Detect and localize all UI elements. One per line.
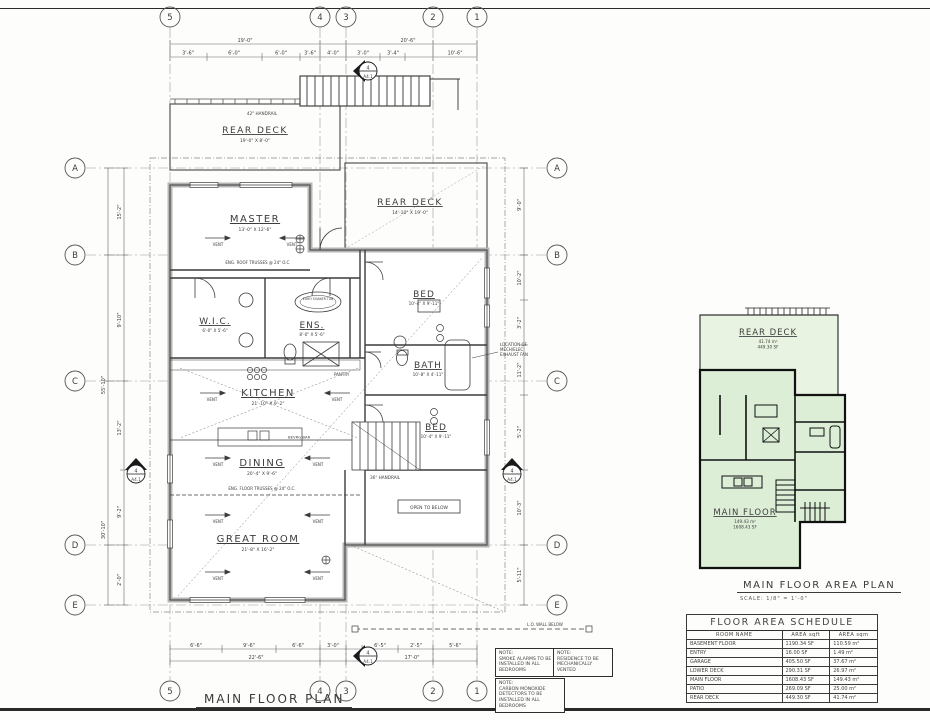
grid-col-3: 3 [343, 13, 348, 23]
section-sheet: A4.1 [363, 659, 373, 664]
dim-top-seg-4: 3'-6" [304, 51, 316, 57]
grid-row-a2: A [554, 164, 560, 174]
note-body: CARBON MONOXIDE DETECTORS TO BE INSTALLE… [499, 687, 561, 710]
cell-room: REAR DECK [687, 694, 783, 703]
area-floor-label: MAIN FLOOR [713, 508, 776, 518]
cell-sqm: 149.43 m² [830, 676, 878, 685]
dim-bot-seg-4: 3'-0" [327, 643, 339, 649]
cell-sqft: 1608.43 SF [782, 676, 830, 685]
area-deck-railing [745, 308, 830, 315]
grid-row-c2: C [554, 377, 560, 387]
master-dims: 13'-0" X 12'-6" [239, 227, 272, 233]
dim-top-span-2: 20'-6" [400, 38, 415, 44]
grid-col-2: 2 [430, 13, 435, 23]
soaker-tub-label: EURO SOAKER TUB [303, 297, 334, 301]
main-floor-area-plan-drawing: REAR DECK 41.74 m² 449.30 SF MAIN FLOOR … [680, 300, 880, 590]
schedule-header-sqft: AREA sqft [782, 631, 830, 640]
grid-row-c: C [72, 377, 78, 387]
cell-sqm: 37.67 m² [830, 658, 878, 667]
roof-truss-note: ENG. ROOF TRUSSES @ 24" O.C. [225, 260, 290, 265]
section-num: 4 [510, 469, 513, 475]
deck-stairs: 42" HANDRAIL [247, 76, 460, 116]
dim-top-seg-1: 3'-6" [182, 51, 194, 57]
dim-bot-span-2: 17'-0" [404, 655, 419, 661]
ens-label: ENS. [300, 321, 325, 331]
vent-label: VENT [287, 242, 298, 247]
grid-col-5: 5 [167, 13, 172, 23]
section-marker-left: 4 A4.1 [125, 458, 147, 483]
dim-bot-seg-2: 9'-6" [243, 643, 255, 649]
section-marker-right: 4 A4.1 [501, 458, 523, 483]
schedule-row: GARAGE 405.50 SF 37.67 m² [687, 658, 878, 667]
vent-label: VENT [213, 462, 224, 467]
section-num: 4 [366, 66, 369, 72]
dim-left-seg-4: 9'-2" [117, 506, 123, 518]
grid-col-2b: 2 [430, 687, 435, 697]
cell-room: ENTRY [687, 649, 783, 658]
dim-top-seg-6: 3'-0" [357, 51, 369, 57]
dim-left-seg-1: 15'-2" [117, 204, 123, 219]
dim-right-seg-3: 3'-2" [517, 317, 523, 329]
master-label: MASTER [230, 214, 280, 225]
vent-label: VENT [313, 462, 324, 467]
dim-top-span-1: 19'-0" [237, 38, 252, 44]
section-sheet: A4.1 [131, 477, 141, 482]
section-sheet: A4.1 [363, 74, 373, 79]
area-deck-sf: 449.30 SF [757, 345, 779, 350]
area-floor-shape [700, 370, 845, 568]
dining-label: DINING [239, 458, 284, 469]
bath-dims: 10'-8" X 4'-11" [413, 372, 444, 377]
schedule-header-sqm: AREA sqm [830, 631, 878, 640]
kitchen-dims: 21'-10" X 9'-2" [252, 401, 285, 407]
note-co-detectors: NOTE: CARBON MONOXIDE DETECTORS TO BE IN… [495, 678, 565, 713]
cell-sqft: 405.50 SF [782, 658, 830, 667]
rear-deck-right: REAR DECK 14'-10" X 19'-0" [345, 163, 487, 250]
dim-top-seg-2: 6'-0" [228, 51, 240, 57]
note-mech-vent: NOTE: RESIDENCE TO BE MECHANICALLY VENTE… [553, 648, 613, 677]
note-body: SMOKE ALARMS TO BE INSTALLED IN ALL BEDR… [499, 657, 555, 674]
schedule-row: ENTRY 16.00 SF 1.49 m² [687, 649, 878, 658]
cell-sqft: 290.31 SF [782, 667, 830, 676]
vent-label: VENT [213, 519, 224, 524]
cell-sqft: 1190.34 SF [782, 640, 830, 649]
vent-label: VENT [213, 242, 224, 247]
dim-left-seg-3: 13'-2" [117, 420, 123, 435]
dim-top-seg-3: 6'-0" [275, 51, 287, 57]
rear-deck-left: REAR DECK 19'-0" X 8'-0" [170, 99, 340, 170]
grid-bubbles-top: 5 4 3 2 1 [160, 7, 487, 27]
area-deck-label: REAR DECK [739, 328, 797, 338]
dim-bot-seg-3: 6'-6" [292, 643, 304, 649]
grid-col-1: 1 [474, 13, 479, 23]
dim-top-seg-8: 10'-6" [447, 51, 462, 57]
bed1-dims: 10'-4" X 9'-11" [409, 301, 440, 306]
dim-left-span-2: 30'-10" [101, 521, 107, 539]
cell-sqft: 16.00 SF [782, 649, 830, 658]
dim-right-seg-4: 11'-2" [517, 362, 523, 377]
dim-right: 9'-0" 10'-2" 3'-2" 11'-2" 5'-2" 10'-3" 5… [517, 168, 528, 605]
area-plan-scale: SCALE: 1/8" = 1'-0" [740, 596, 808, 602]
section-num: 4 [366, 651, 369, 657]
schedule-row: BASEMENT FLOOR 1190.34 SF 110.59 m² [687, 640, 878, 649]
rear-deck-right-label: REAR DECK [377, 198, 443, 208]
lo-wall-below: L.O. WALL BELOW [352, 622, 592, 632]
ens-dims: 8'-0" X 5'-6" [299, 332, 324, 337]
dim-bottom: 6'-6" 9'-6" 6'-6" 3'-0" 6'-5" 2'-5" 5'-6… [170, 643, 477, 665]
dim-left-seg-2: 9'-10" [117, 312, 123, 327]
dim-bot-seg-5: 6'-5" [374, 643, 386, 649]
area-plan-title: MAIN FLOOR AREA PLAN [737, 580, 901, 593]
dim-left-seg-5: 2'-0" [117, 574, 123, 586]
grid-row-d: D [72, 541, 79, 551]
area-deck-m2: 41.74 m² [758, 339, 777, 344]
dim-left: 15'-2" 9'-10" 13'-2" 9'-2" 2'-0" 55'-10"… [101, 168, 128, 605]
floor-truss-note: ENG. FLOOR TRUSSES @ 24" O.C. [228, 486, 295, 491]
section-sheet: A4.1 [507, 477, 517, 482]
drawing-sheet: 5 4 3 2 1 5 4 3 2 1 A B C [0, 0, 930, 720]
cell-sqft: 269.09 SF [782, 685, 830, 694]
grid-row-b: B [72, 251, 78, 261]
bevrg-bar-label: BEVRG BAR [288, 435, 311, 440]
dim-right-seg-6: 10'-3" [517, 500, 523, 515]
schedule-header-room: ROOM NAME [687, 631, 783, 640]
grid-col-4: 4 [317, 13, 322, 23]
main-floor-plan-drawing: 5 4 3 2 1 5 4 3 2 1 A B C [0, 0, 660, 720]
bed2-dims: 10'-4" X 9'-11" [421, 434, 452, 439]
grid-row-d2: D [554, 541, 561, 551]
wic-dims: 6'-0" X 5'-6" [202, 328, 227, 333]
grid-col-5b: 5 [167, 687, 172, 697]
rear-deck-left-label: REAR DECK [222, 126, 288, 136]
handrail-36-label: 36" HANDRAIL [370, 475, 401, 480]
vent-label: VENT [213, 576, 224, 581]
great-room-dims: 21'-8" X 16'-2" [242, 547, 275, 553]
grid-row-e2: E [554, 601, 559, 611]
grid-row-e: E [72, 601, 77, 611]
cell-room: MAIN FLOOR [687, 676, 783, 685]
main-floor-plan-title: MAIN FLOOR PLAN [196, 692, 352, 708]
dim-right-seg-5: 5'-2" [517, 426, 523, 438]
open-to-below-label: OPEN TO BELOW [410, 505, 448, 511]
area-floor-m2: 149.43 m² [734, 519, 756, 524]
section-num: 4 [134, 469, 137, 475]
grid-bubbles-left: A B C D E [65, 158, 85, 615]
dim-top-seg-7: 3'-4" [387, 51, 399, 57]
great-room-label: GREAT ROOM [217, 534, 300, 545]
rear-deck-right-dims: 14'-10" X 19'-0" [392, 210, 428, 216]
note-smoke-alarms: NOTE: SMOKE ALARMS TO BE INSTALLED IN AL… [495, 648, 559, 677]
vent-label: VENT [207, 397, 218, 402]
cell-sqm: 110.59 m² [830, 640, 878, 649]
grid-col-1b: 1 [474, 687, 479, 697]
vent-label: VENT [332, 397, 343, 402]
dim-right-seg-1: 9'-0" [517, 199, 523, 211]
dining-dims: 20'-4" X 9'-6" [247, 471, 277, 477]
cell-room: BASEMENT FLOOR [687, 640, 783, 649]
dim-bot-seg-6: 2'-5" [410, 643, 422, 649]
exhaust-note-3: EXHAUST FAN [500, 352, 528, 357]
schedule-row: LOWER DECK 290.31 SF 26.97 m² [687, 667, 878, 676]
dim-left-span-1: 55'-10" [101, 376, 107, 394]
cell-sqm: 25.00 m² [830, 685, 878, 694]
wic-label: W.I.C. [199, 317, 230, 327]
cell-sqm: 26.97 m² [830, 667, 878, 676]
dim-top: 19'-0" 20'-6" 3'-6" 6'-0" 6'-0" 3'-6" 4'… [170, 38, 477, 61]
dim-bot-seg-1: 6'-6" [190, 643, 202, 649]
rear-deck-left-dims: 19'-0" X 8'-0" [240, 138, 270, 144]
dim-right-seg-7: 5'-11" [517, 567, 523, 582]
section-marker-bottom: 4 A4.1 [353, 645, 377, 667]
bath-label: BATH [414, 361, 442, 371]
area-floor-sf: 1608.43 SF [733, 525, 757, 530]
vent-label: VENT [313, 576, 324, 581]
dim-right-seg-2: 10'-2" [517, 270, 523, 285]
grid-bubbles-right: A B C D E [547, 158, 567, 615]
vent-label: VENT [313, 519, 324, 524]
note-body: RESIDENCE TO BE MECHANICALLY VENTED [557, 657, 609, 674]
cell-room: PATIO [687, 685, 783, 694]
schedule-row: PATIO 269.09 SF 25.00 m² [687, 685, 878, 694]
floor-area-schedule: FLOOR AREA SCHEDULE ROOM NAME AREA sqft … [686, 614, 878, 703]
grid-row-b2: B [554, 251, 560, 261]
dim-top-seg-5: 4'-0" [327, 51, 339, 57]
dim-bot-span-1: 22'-6" [248, 655, 263, 661]
handrail-42-label: 42" HANDRAIL [247, 111, 278, 116]
cell-room: LOWER DECK [687, 667, 783, 676]
dim-bot-seg-7: 5'-6" [449, 643, 461, 649]
grid-row-a: A [72, 164, 78, 174]
bed1-label: BED [413, 290, 435, 300]
cell-sqft: 449.30 SF [782, 694, 830, 703]
cell-sqm: 41.74 m² [830, 694, 878, 703]
bed2-label: BED [425, 423, 447, 433]
kitchen-label: KITCHEN [241, 388, 295, 399]
cell-sqm: 1.49 m² [830, 649, 878, 658]
schedule-title: FLOOR AREA SCHEDULE [687, 615, 878, 631]
lo-wall-below-label: L.O. WALL BELOW [527, 622, 563, 627]
schedule-row: MAIN FLOOR 1608.43 SF 149.43 m² [687, 676, 878, 685]
cell-room: GARAGE [687, 658, 783, 667]
schedule-row: REAR DECK 449.30 SF 41.74 m² [687, 694, 878, 703]
